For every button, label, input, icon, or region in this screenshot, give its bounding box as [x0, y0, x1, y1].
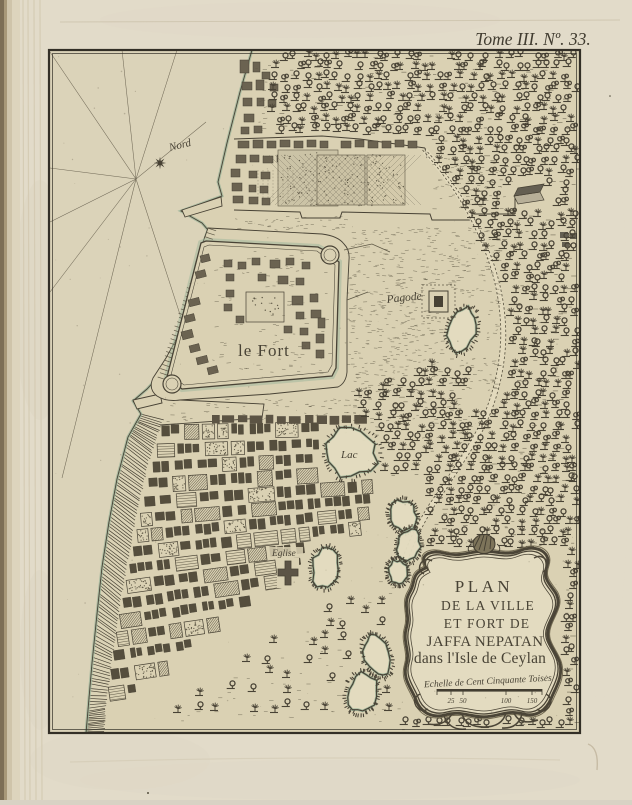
svg-text:Tome III. Nº. 33.: Tome III. Nº. 33.: [475, 29, 591, 49]
